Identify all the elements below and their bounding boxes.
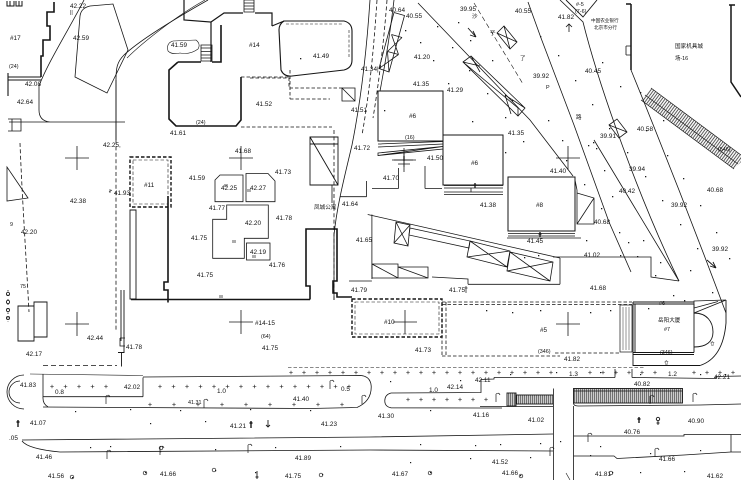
svg-text:||: || [70,10,73,16]
svg-text:41.66: 41.66 [502,470,518,477]
svg-text:41.29: 41.29 [447,87,463,94]
svg-text:41.30: 41.30 [378,413,394,420]
svg-text:41.78: 41.78 [276,215,292,222]
svg-text:42.25,: 42.25, [103,142,121,149]
svg-text:41.75: 41.75 [285,473,301,480]
svg-text:1.0: 1.0 [429,387,438,394]
svg-text:(16): (16) [405,135,415,141]
svg-text:#8: #8 [536,202,544,209]
svg-text:41.79: 41.79 [351,287,367,294]
svg-text:40.58: 40.58 [637,126,653,133]
svg-text:41.62: 41.62 [707,473,723,480]
svg-text:41.67: 41.67 [392,471,408,478]
svg-text:41.76: 41.76 [269,262,285,269]
svg-text:(546): (546) [718,147,731,153]
svg-text:#11: #11 [144,182,155,189]
svg-text:42.59: 42.59 [73,35,89,42]
svg-text:41.40: 41.40 [550,168,566,175]
svg-text:#7: #7 [664,327,670,333]
svg-text:42.17: 42.17 [26,351,42,358]
svg-text:41.70: 41.70 [383,175,399,182]
svg-text:41.75: 41.75 [191,235,207,242]
svg-text:41.23: 41.23 [321,421,337,428]
svg-text:39.94: 39.94 [629,166,645,173]
svg-text:1.0: 1.0 [217,388,226,395]
svg-text:1.3: 1.3 [569,371,578,378]
svg-text:41.81: 41.81 [595,471,611,478]
svg-text:#14-15: #14-15 [255,320,275,327]
svg-text:41.93: 41.93 [114,190,130,197]
svg-text:41.45: 41.45 [527,238,543,245]
svg-text:41.52: 41.52 [492,459,508,466]
svg-text:41.77: 41.77 [209,205,225,212]
svg-text:1.2: 1.2 [668,371,677,378]
svg-text:41.64: 41.64 [342,201,358,208]
svg-text:41.82: 41.82 [564,356,580,363]
svg-text:41.46: 41.46 [36,454,52,461]
svg-text:41.50: 41.50 [427,155,443,162]
svg-text:41.02: 41.02 [584,252,600,259]
svg-text:0.8: 0.8 [55,389,64,396]
svg-text:41.73: 41.73 [275,169,291,176]
svg-text:子: 子 [490,30,496,37]
svg-text:41.78: 41.78 [126,344,142,351]
svg-text:75: 75 [20,284,26,290]
svg-text:岳阳大厦: 岳阳大厦 [658,316,681,324]
svg-text:路: 路 [576,113,582,121]
svg-text:39.92: 39.92 [533,73,549,80]
svg-text:41.20: 41.20 [414,54,430,61]
svg-text:#10: #10 [384,319,395,326]
svg-text:42.64: 42.64 [17,99,33,106]
svg-text:41.35: 41.35 [413,81,429,88]
svg-text:42.44: 42.44 [87,335,103,342]
svg-text:39.92: 39.92 [671,202,687,209]
svg-text:0.5: 0.5 [341,386,350,393]
svg-text:场-16: 场-16 [675,54,688,62]
svg-text:41.61: 41.61 [170,130,186,137]
svg-text:40.45: 40.45 [585,68,601,75]
svg-text:(24): (24) [9,64,19,70]
svg-text:39.92: 39.92 [712,246,728,253]
svg-text:42.08: 42.08 [25,81,41,88]
svg-text:仓: 仓 [710,340,715,346]
svg-text:41.52: 41.52 [256,101,272,108]
svg-text:仓: 仓 [664,359,669,365]
svg-text:41.59: 41.59 [171,42,187,49]
svg-text:#14: #14 [249,42,260,49]
svg-text:41.38: 41.38 [480,202,496,209]
svg-text:北京市分行: 北京市分行 [594,24,617,31]
svg-text:42.21: 42.21 [714,374,730,381]
svg-text:41.02: 41.02 [528,417,544,424]
svg-text:40.55: 40.55 [406,13,422,20]
svg-text:41.89: 41.89 [295,455,311,462]
svg-text:40.82: 40.82 [634,381,650,388]
svg-text:42.20: 42.20 [245,220,261,227]
svg-text:42.11: 42.11 [475,377,491,384]
svg-text:41.73: 41.73 [415,347,431,354]
svg-text:国家机具城: 国家机具城 [675,42,703,50]
svg-text:9: 9 [10,222,13,228]
svg-text:#17: #17 [10,35,21,42]
svg-text:(346): (346) [660,350,673,356]
svg-text:(24): (24) [196,120,206,126]
svg-text:41.82: 41.82 [558,14,574,21]
svg-text:41.66: 41.66 [160,471,176,478]
svg-text:40.64: 40.64 [389,7,405,14]
svg-text:#6: #6 [659,301,665,307]
svg-text:41.16: 41.16 [473,412,489,419]
svg-text:40.42: 40.42 [619,188,635,195]
svg-text:42.22: 42.22 [70,3,86,10]
svg-text:41.65: 41.65 [356,237,372,244]
svg-text:42.25: 42.25 [221,185,237,192]
svg-text:#5: #5 [540,327,548,334]
svg-text:39.95: 39.95 [460,6,476,13]
svg-text:41.59: 41.59 [189,175,205,182]
svg-text:41.68: 41.68 [590,285,606,292]
svg-text:40.68: 40.68 [594,219,610,226]
svg-text:#-5: #-5 [576,2,584,8]
svg-text:42.27: 42.27 [250,185,266,192]
svg-text:42.02: 42.02 [124,384,140,391]
svg-text:沙: 沙 [472,13,478,20]
svg-text:P: P [546,85,550,91]
svg-text:41.51: 41.51 [351,107,367,114]
svg-text:#6: #6 [471,160,479,167]
svg-text:41.66: 41.66 [659,456,675,463]
svg-text:42.14: 42.14 [447,384,463,391]
svg-text:40.90: 40.90 [688,418,704,425]
svg-text:40.68: 40.68 [707,187,723,194]
svg-text:(64): (64) [261,334,271,340]
svg-text:41.31: 41.31 [188,400,202,406]
svg-text:41.68: 41.68 [235,148,251,155]
svg-text:凤城公寓: 凤城公寓 [314,203,337,211]
svg-text:41.49: 41.49 [313,53,329,60]
svg-text:41.75: 41.75 [262,345,278,352]
svg-text:39.91: 39.91 [600,133,616,140]
svg-text:41.83: 41.83 [20,382,36,389]
svg-text:40.55: 40.55 [515,8,531,15]
svg-text:41.75: 41.75 [197,272,213,279]
svg-text:41.34|: 41.34| [361,66,379,73]
svg-text:41.40: 41.40 [293,396,309,403]
svg-text:了: 了 [520,55,526,62]
svg-text:41.07: 41.07 [30,420,46,427]
svg-text:41.21: 41.21 [230,423,246,430]
svg-text:41.75: 41.75 [449,287,465,294]
svg-text:42.38: 42.38 [70,198,86,205]
svg-text:中国农业银行: 中国农业银行 [591,17,619,24]
svg-text:40.76: 40.76 [624,429,640,436]
svg-text:(7-6): (7-6) [575,9,587,15]
svg-text:41.56: 41.56 [48,473,64,480]
svg-text:#6: #6 [409,113,417,120]
svg-text:41.72: 41.72 [354,145,370,152]
svg-text:42.20: 42.20 [21,229,37,236]
svg-text:41.35: 41.35 [508,130,524,137]
svg-text:.05: .05 [9,435,18,442]
svg-text:(346): (346) [538,349,551,355]
svg-text:42.19: 42.19 [250,249,266,256]
